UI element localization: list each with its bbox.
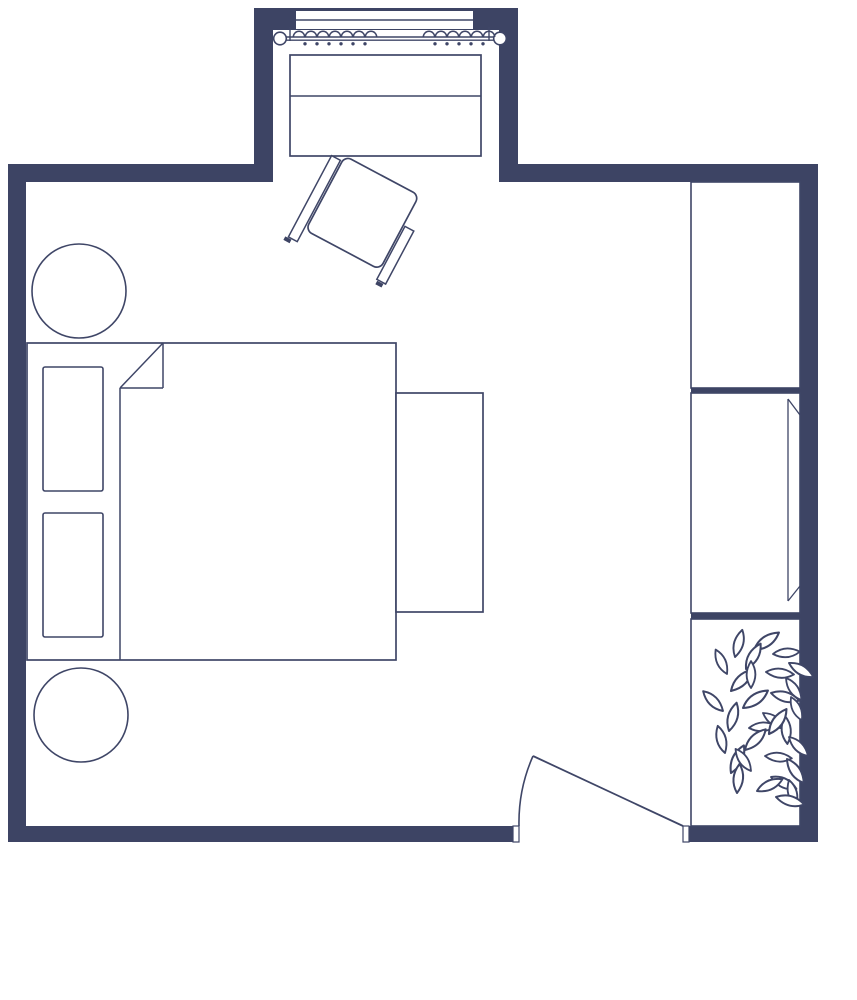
side-table-bottom — [34, 668, 128, 762]
desk-chair — [283, 149, 429, 292]
curtain-hook — [363, 42, 366, 45]
door-leaf — [533, 756, 683, 826]
curtain-ring — [305, 31, 316, 37]
bed-pillow — [43, 367, 103, 491]
curtain-hook — [445, 42, 448, 45]
bedroom-floor-plan — [0, 0, 857, 1000]
bed — [27, 343, 396, 660]
dresser-body — [290, 55, 481, 156]
curtain-ring — [329, 31, 340, 37]
curtain-ring — [365, 31, 376, 37]
window — [296, 11, 473, 29]
side-table-round — [34, 668, 128, 762]
curtain-ring — [317, 31, 328, 37]
bench — [396, 393, 483, 612]
curtain-finial — [274, 32, 287, 45]
curtain-hook — [303, 42, 306, 45]
curtain-ring — [341, 31, 352, 37]
bench-body — [396, 393, 483, 612]
curtain-ring — [459, 31, 470, 37]
bed-pillow — [43, 513, 103, 637]
closet-cabinet-top — [691, 182, 800, 388]
curtain-ring — [447, 31, 458, 37]
wall-alcove-left — [254, 8, 273, 182]
curtain-ring — [435, 31, 446, 37]
curtain-hook — [339, 42, 342, 45]
side-table-top — [32, 244, 126, 338]
closet-divider — [691, 613, 800, 619]
wall-right — [800, 164, 818, 842]
curtain-hook — [327, 42, 330, 45]
curtain-finial — [494, 32, 507, 45]
curtain-ring — [471, 31, 482, 37]
wall-left — [8, 164, 26, 842]
wall-top-right — [499, 164, 818, 182]
curtain-hook — [315, 42, 318, 45]
curtain-hook — [433, 42, 436, 45]
floor-plan-page — [0, 0, 857, 1000]
wall-top-left — [8, 164, 273, 182]
door-swing-arc — [519, 756, 533, 826]
wall-bottom-left — [8, 826, 514, 842]
curtain-ring — [423, 31, 434, 37]
dresser — [290, 55, 481, 156]
curtain-hook — [469, 42, 472, 45]
curtain-ring — [353, 31, 364, 37]
curtain-hook — [351, 42, 354, 45]
closet-cabinet-middle — [691, 393, 800, 613]
door-jamb — [513, 826, 519, 842]
curtain-hook — [481, 42, 484, 45]
curtain-ring — [293, 31, 304, 37]
wall-bottom-right — [689, 826, 818, 842]
curtain-hook — [457, 42, 460, 45]
side-table-round — [32, 244, 126, 338]
door — [513, 756, 689, 842]
door-jamb — [683, 826, 689, 842]
